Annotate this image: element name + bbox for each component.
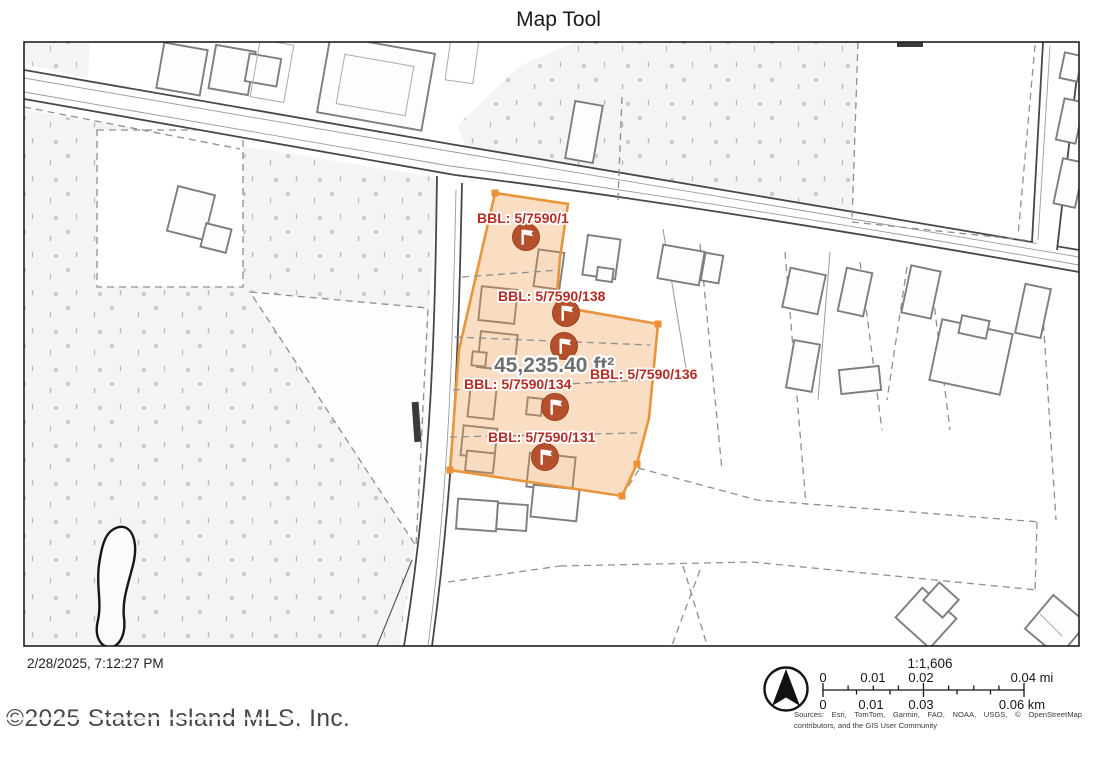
copyright-watermark: ©2025 Staten Island MLS, Inc. xyxy=(6,705,306,739)
attribution-text: Sources: Esri, TomTom, Garmin, FAO, NOAA… xyxy=(794,709,1082,731)
scale-ratio: 1:1,606 xyxy=(907,656,952,671)
scale-bar: 1:1,606 0 0.01 0.02 0.04 mi 0 xyxy=(819,656,1053,712)
map-canvas[interactable]: BBL: 5/7590/1 BBL: 5/7590/138 45,235.40 … xyxy=(0,0,1117,757)
flag-marker-icon[interactable] xyxy=(513,224,540,251)
svg-text:0.01: 0.01 xyxy=(860,670,885,685)
flag-marker-icon[interactable] xyxy=(542,394,569,421)
map-tool-window: Map Tool xyxy=(0,0,1117,757)
svg-text:0.04 mi: 0.04 mi xyxy=(1011,670,1054,685)
svg-text:0.02: 0.02 xyxy=(908,670,933,685)
svg-text:0: 0 xyxy=(819,670,826,685)
parcel-label: BBL: 5/7590/131 xyxy=(488,429,596,445)
flag-marker-icon[interactable] xyxy=(532,444,559,471)
map-timestamp: 2/28/2025, 7:12:27 PM xyxy=(27,656,164,671)
parcel-label: BBL: 5/7590/134 xyxy=(464,376,572,392)
north-arrow xyxy=(765,668,808,711)
parcel-label: BBL: 5/7590/136 xyxy=(590,366,698,382)
parcel-label: BBL: 5/7590/1 xyxy=(477,210,569,226)
parcel-label: BBL: 5/7590/138 xyxy=(498,288,606,304)
